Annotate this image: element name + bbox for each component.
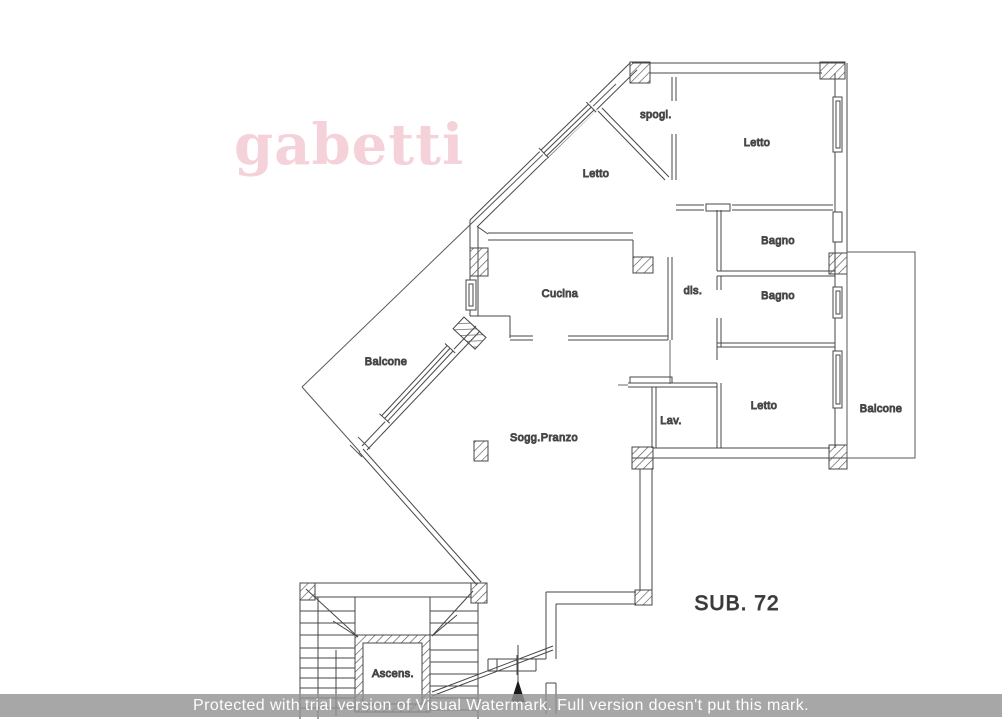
room-label-disimpegno: dis. [684, 285, 703, 297]
room-label-cucina: Cucina [542, 288, 579, 300]
room-label-lavanderia: Lav. [660, 415, 682, 427]
exterior-walls [359, 63, 855, 591]
window-nw-diagonal [537, 101, 597, 160]
balcony-west-railing [302, 84, 616, 457]
pillar [474, 441, 488, 461]
interior-walls [478, 77, 835, 448]
room-label-bagno-1: Bagno [761, 235, 795, 247]
right-wall-windows [466, 97, 842, 408]
room-label-balcone-ovest: Balcone [365, 356, 408, 368]
unit-label: SUB. 72 [694, 592, 779, 615]
room-label-soggiorno-pranzo: Sogg.Pranzo [510, 432, 578, 444]
room-label-spogliatoio: spogl. [640, 109, 672, 121]
room-label-ascensore: Ascens. [372, 668, 414, 680]
balcony-east-outline [847, 252, 915, 458]
trial-watermark-banner: Protected with trial version of Visual W… [0, 694, 1002, 717]
room-label-letto-sudest: Letto [751, 400, 777, 412]
room-label-bagno-2: Bagno [761, 290, 795, 302]
room-label-letto-nordest: Letto [744, 137, 770, 149]
room-label-balcone-est: Balcone [860, 403, 903, 415]
room-label-letto-nord: Letto [583, 168, 609, 180]
window-sw-diagonal [378, 342, 456, 425]
laundry-counter [630, 377, 672, 383]
floor-plan-canvas: spogl. Letto Letto Bagno dis. Bagno Cuci… [0, 0, 1002, 720]
